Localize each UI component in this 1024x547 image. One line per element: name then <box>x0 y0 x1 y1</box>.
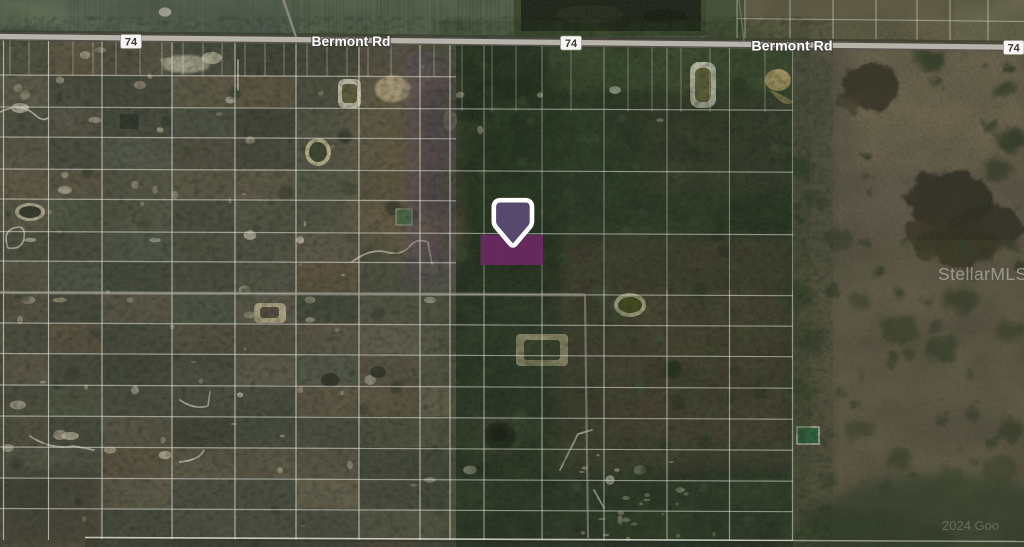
svg-text:Bermont Rd: Bermont Rd <box>312 34 391 49</box>
svg-text:74: 74 <box>125 37 138 49</box>
svg-text:74: 74 <box>1008 43 1021 55</box>
svg-text:74: 74 <box>565 38 578 50</box>
svg-text:StellarMLS: StellarMLS <box>938 264 1024 284</box>
svg-text:2024 Goo: 2024 Goo <box>942 518 999 533</box>
svg-text:Bermont Rd: Bermont Rd <box>751 39 832 55</box>
